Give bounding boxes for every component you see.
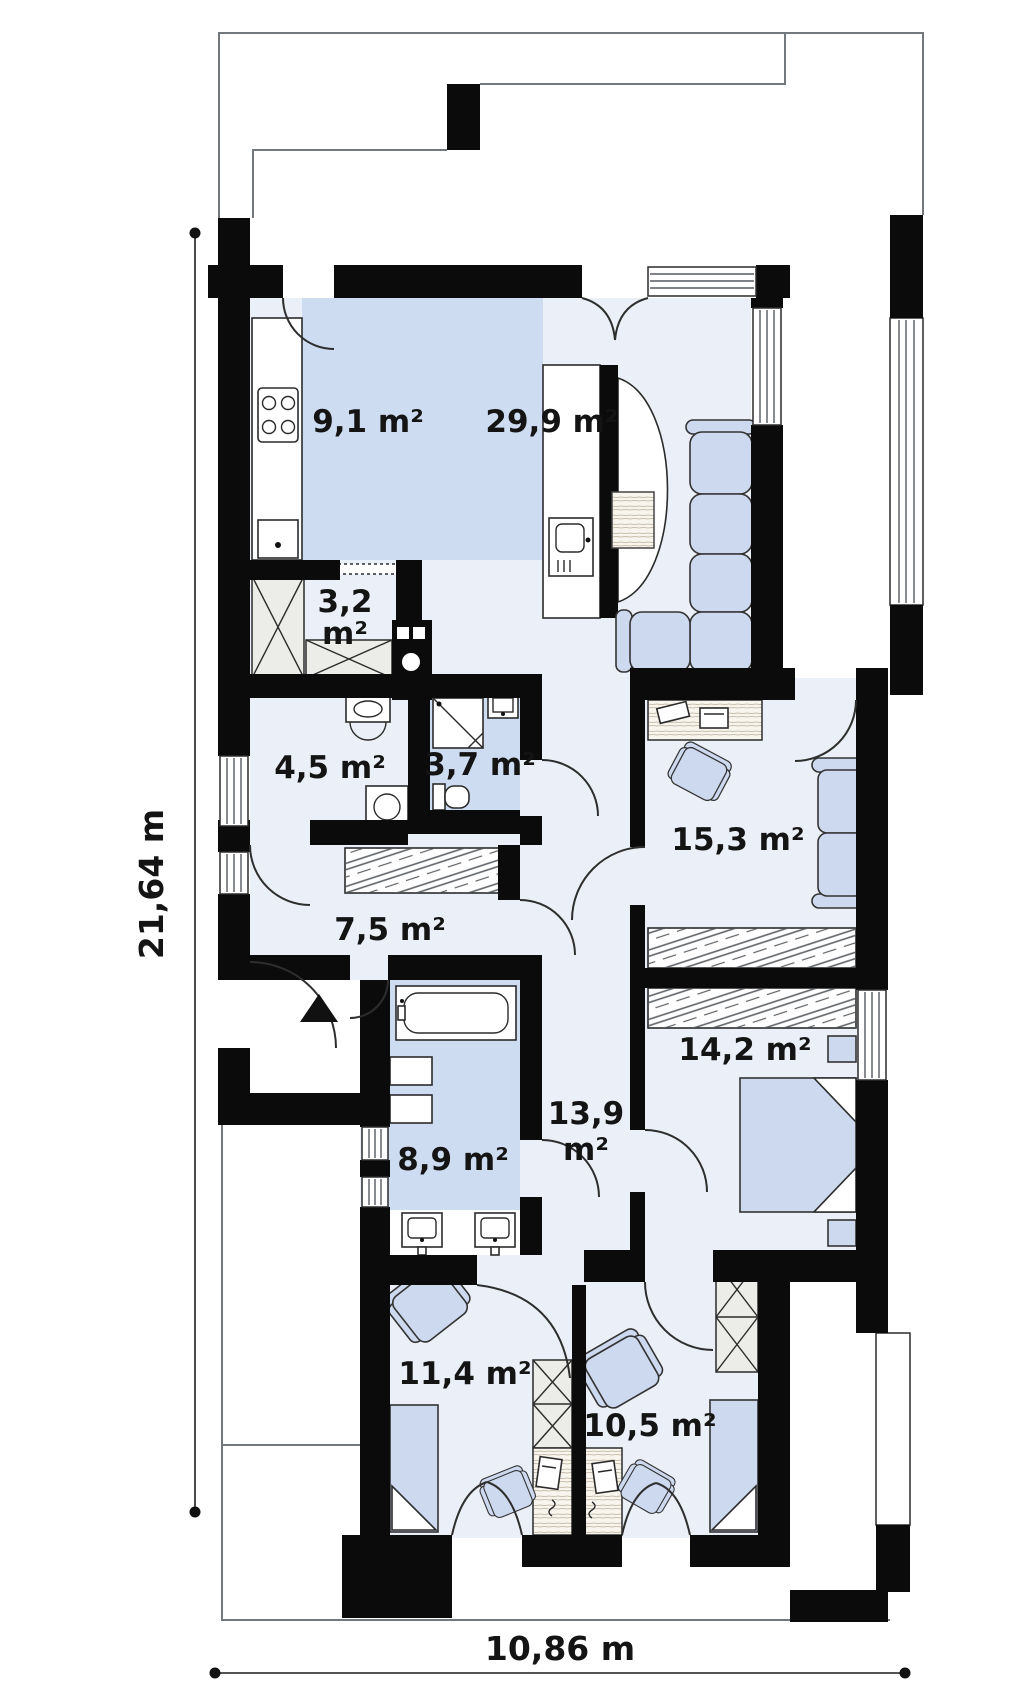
cabinet-icon: [390, 1057, 432, 1085]
room-label-utility-room: 4,5 m²: [274, 750, 386, 786]
office-desk-icon: [648, 700, 762, 740]
entry-porch-floor: [218, 1125, 360, 1450]
cabinet-icon: [390, 1095, 432, 1123]
bathtub-icon: [396, 986, 516, 1040]
laptop-icon: [592, 1461, 618, 1494]
pillar: [447, 84, 480, 150]
room-label-bathroom: 8,9 m²: [397, 1142, 509, 1178]
window-icon: [362, 1177, 388, 1207]
room-label-shower-room: 3,7 m²: [424, 747, 536, 783]
coffee-table-icon: [612, 492, 654, 548]
room-label-kitchen: 9,1 m²: [312, 404, 424, 440]
window-icon: [858, 990, 886, 1080]
desk-icon: [533, 1448, 572, 1535]
bed-icon: [710, 1400, 758, 1532]
window-icon: [753, 308, 781, 425]
pillar: [890, 605, 923, 695]
porch-column: [876, 1333, 910, 1525]
window-icon: [220, 852, 248, 894]
cooktop-icon: [258, 388, 298, 442]
nightstand-icon: [828, 1036, 856, 1062]
sliding-door-icon: [338, 564, 400, 574]
room-label-child-room-1: 11,4 m²: [398, 1356, 531, 1392]
window-icon: [648, 267, 756, 296]
wardrobe-icon: [345, 848, 518, 893]
room-label-child-room-2: 10,5 m²: [583, 1408, 716, 1444]
room-label-hall: 7,5 m²: [334, 912, 446, 948]
shower-icon: [433, 698, 483, 748]
room-label-office: 15,3 m²: [671, 822, 804, 858]
vestibule-floor: [250, 980, 360, 1093]
kitchen-counter-icon: [252, 318, 302, 560]
wardrobe-icon: [533, 1360, 572, 1448]
floor-plan-page: 9,1 m² 29,9 m² 3,2 m² 4,5 m² 3,7 m² 7,5 …: [0, 0, 1024, 1702]
pillar: [890, 215, 923, 318]
toilet-icon: [433, 784, 469, 810]
desk-icon: [584, 1448, 622, 1535]
room-label-pantry-unit: m²: [322, 616, 368, 652]
room-label-corridor: 13,9: [548, 1096, 625, 1132]
width-dimension-label: 10,86 m: [485, 1629, 635, 1668]
nightstand-icon: [828, 1220, 856, 1246]
wardrobe-icon: [648, 928, 856, 968]
window-icon: [362, 1127, 388, 1160]
laptop-icon: [536, 1457, 562, 1490]
height-dimension-label: 21,64 m: [132, 809, 171, 959]
room-label-pantry: 3,2: [318, 584, 373, 620]
room-label-corridor-unit: m²: [563, 1132, 609, 1168]
room-label-bedroom: 14,2 m²: [678, 1032, 811, 1068]
bed-icon: [390, 1405, 438, 1532]
wardrobe-icon: [648, 988, 856, 1028]
laptop-icon: [700, 708, 728, 728]
room-label-living-room: 29,9 m²: [485, 404, 618, 440]
floor-plan: 9,1 m² 29,9 m² 3,2 m² 4,5 m² 3,7 m² 7,5 …: [0, 0, 1024, 1702]
window-icon: [220, 756, 248, 826]
